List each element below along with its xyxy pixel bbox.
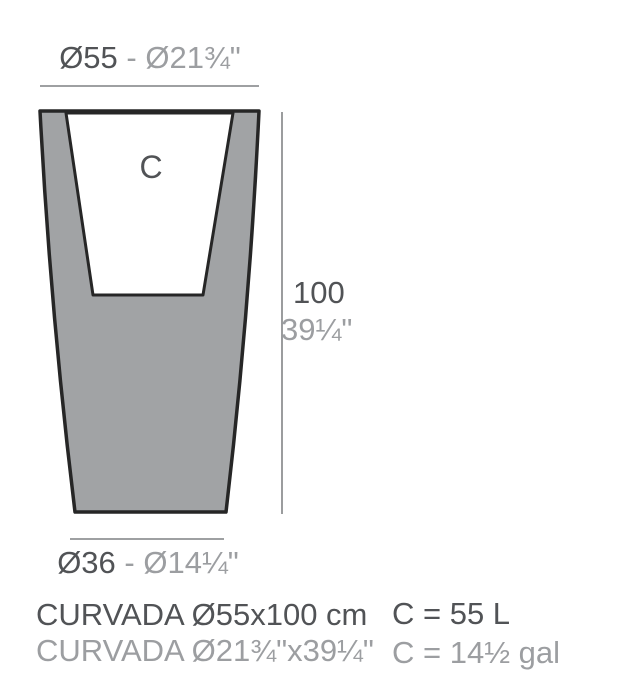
top-dimension-imperial: - Ø21¾" (126, 40, 240, 75)
top-dimension-label: Ø55 - Ø21¾" (59, 42, 241, 73)
bottom-dimension-label: Ø36 - Ø14¼" (57, 547, 239, 578)
height-dimension-imperial: 39¼" (281, 314, 352, 345)
planter-cavity-shape (66, 113, 233, 295)
top-dimension-metric: Ø55 (59, 40, 118, 75)
cavity-label: C (139, 151, 162, 183)
bottom-dimension-imperial: - Ø14¼" (124, 545, 238, 580)
planter-spec-sheet: Ø55 - Ø21¾" C 100 39¼" Ø36 - Ø14¼" CURVA… (0, 0, 629, 700)
product-name-metric: CURVADA Ø55x100 cm (36, 599, 367, 630)
capacity-imperial: C = 14½ gal (392, 637, 560, 668)
capacity-metric: C = 55 L (392, 598, 510, 629)
product-name-imperial: CURVADA Ø21¾"x39¼" (36, 635, 374, 666)
bottom-dimension-metric: Ø36 (57, 545, 116, 580)
height-dimension-metric: 100 (293, 277, 345, 308)
planter-diagram (0, 0, 629, 700)
